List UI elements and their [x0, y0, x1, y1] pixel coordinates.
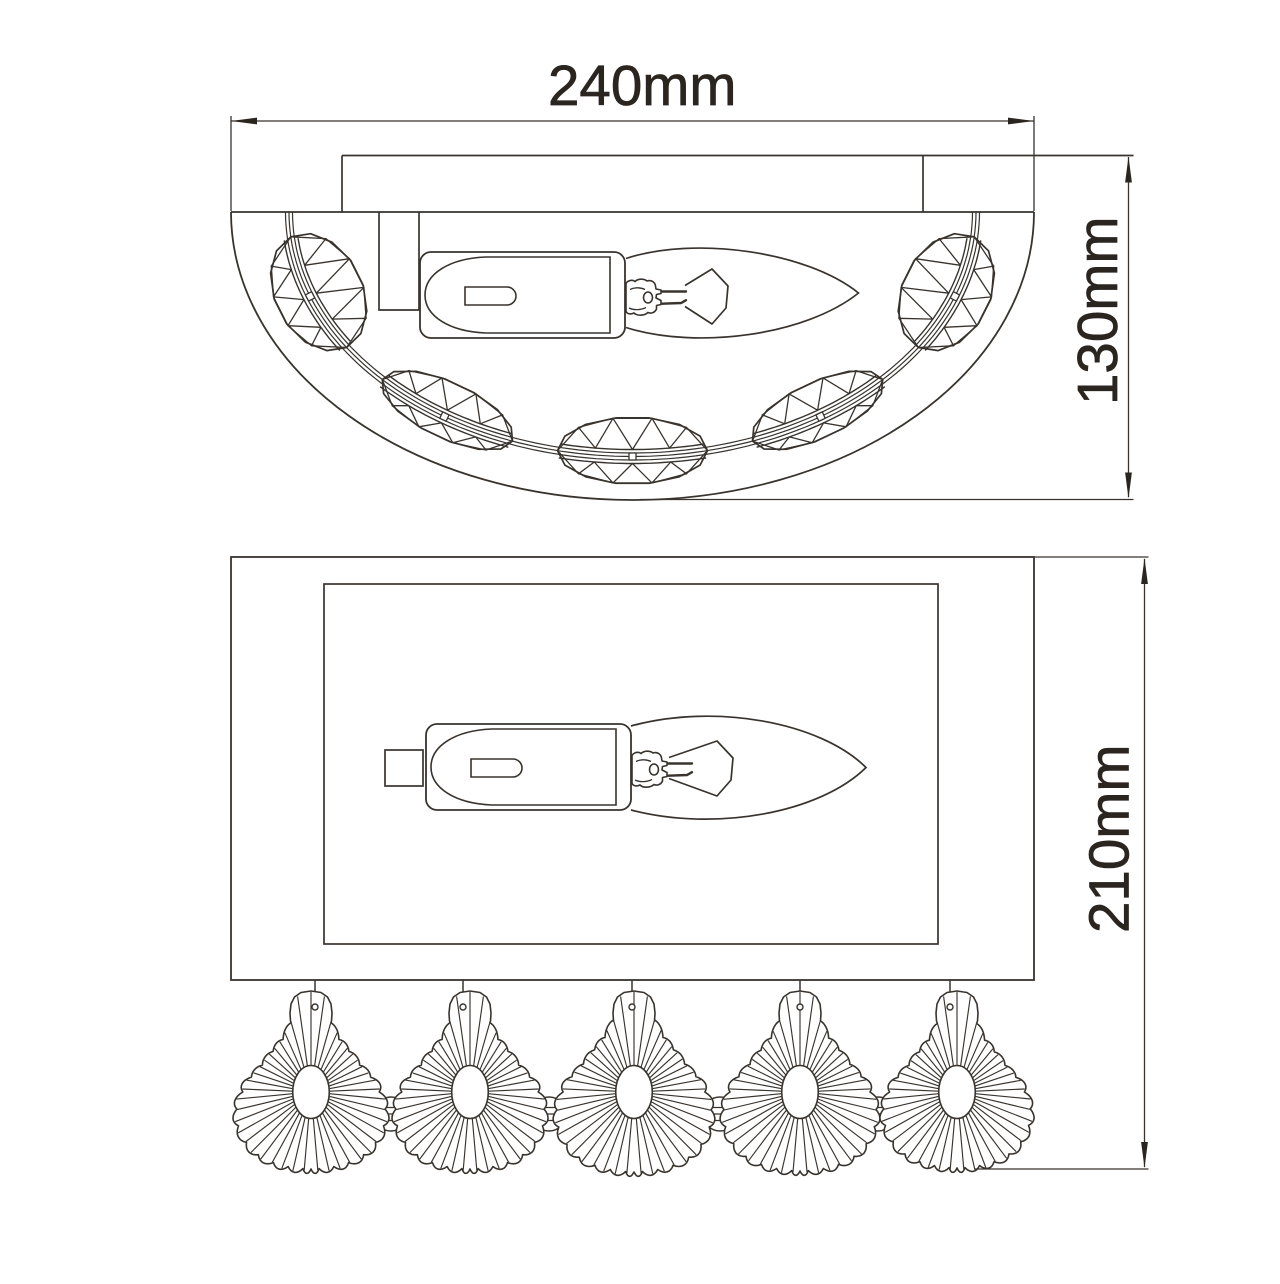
svg-text:240mm: 240mm: [548, 54, 736, 117]
svg-text:210mm: 210mm: [1078, 745, 1141, 933]
svg-text:130mm: 130mm: [1066, 217, 1129, 405]
